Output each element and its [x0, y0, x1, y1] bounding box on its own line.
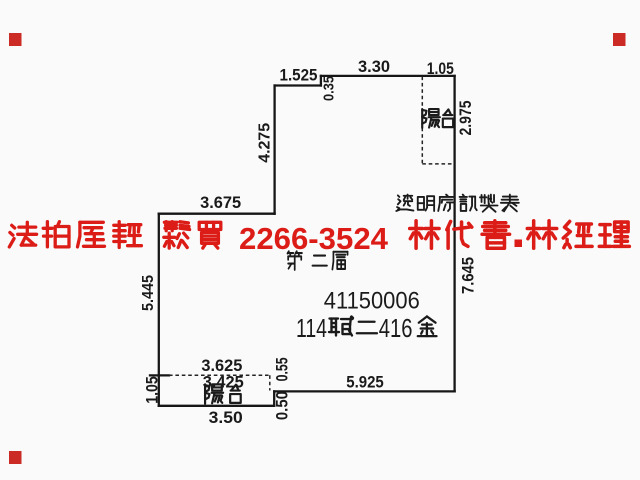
svg-text:1.525: 1.525: [280, 66, 318, 85]
svg-text:0.50: 0.50: [273, 391, 292, 420]
svg-text:7.645: 7.645: [459, 257, 478, 294]
svg-text:1.05: 1.05: [427, 59, 454, 78]
svg-text:5.445: 5.445: [140, 275, 157, 311]
svg-text:4.275: 4.275: [257, 123, 274, 163]
svg-text:0.35: 0.35: [321, 76, 338, 101]
svg-text:3.50: 3.50: [209, 408, 243, 427]
svg-text:3.30: 3.30: [358, 57, 390, 76]
svg-text:416: 416: [379, 313, 413, 343]
svg-text:41150006: 41150006: [324, 288, 420, 315]
svg-text:1.05: 1.05: [143, 376, 162, 404]
svg-text:3.675: 3.675: [200, 193, 241, 212]
svg-text:114: 114: [296, 313, 327, 343]
svg-text:5.925: 5.925: [346, 373, 384, 392]
svg-text:2.975: 2.975: [456, 101, 475, 136]
svg-text:2266-3524: 2266-3524: [239, 221, 389, 256]
svg-text:0.55: 0.55: [273, 357, 292, 381]
